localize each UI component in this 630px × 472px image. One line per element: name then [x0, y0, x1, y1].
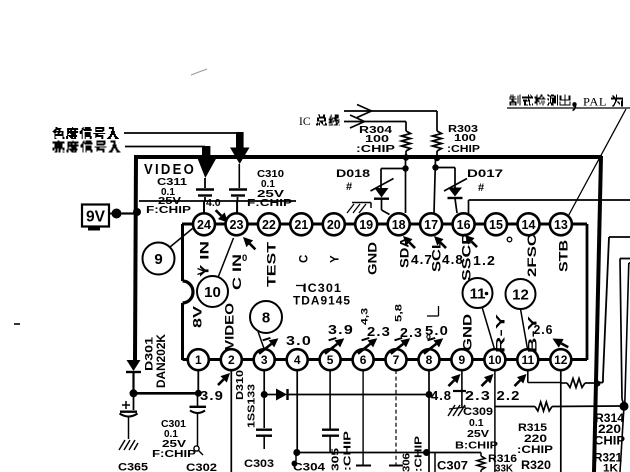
svg-text:4.8: 4.8 — [431, 388, 452, 403]
svg-text:10: 10 — [204, 284, 221, 301]
svg-text:8: 8 — [262, 309, 270, 326]
svg-text:DAN202K: DAN202K — [156, 333, 168, 388]
svg-text:C: C — [299, 255, 311, 263]
svg-text:15: 15 — [489, 218, 503, 232]
svg-text:7: 7 — [393, 353, 400, 367]
svg-text:F:CHIP: F:CHIP — [152, 449, 196, 460]
svg-text:2.2: 2.2 — [497, 388, 521, 403]
svg-text:STB: STB — [559, 240, 571, 272]
svg-text:C365: C365 — [118, 462, 148, 472]
svg-text:Y: Y — [330, 255, 342, 263]
svg-text:4.0: 4.0 — [206, 197, 221, 209]
svg-text:R-Y: R-Y — [496, 313, 508, 353]
svg-text:F:CHIP: F:CHIP — [146, 205, 191, 216]
svg-text:TDA9145: TDA9145 — [293, 296, 351, 308]
svg-text:16: 16 — [457, 218, 471, 232]
svg-text:3: 3 — [261, 353, 268, 367]
svg-text::CHIP: :CHIP — [517, 444, 553, 456]
svg-text:D310: D310 — [234, 370, 246, 400]
svg-text:D018: D018 — [336, 168, 370, 180]
svg-text::CHIP: :CHIP — [447, 143, 480, 155]
svg-text:C302: C302 — [186, 462, 217, 472]
svg-text:2: 2 — [228, 353, 235, 367]
svg-text:24: 24 — [197, 218, 211, 232]
svg-text:4: 4 — [294, 353, 301, 367]
svg-text:2.3: 2.3 — [367, 324, 391, 339]
svg-text:22: 22 — [262, 218, 276, 232]
svg-text:12: 12 — [554, 353, 568, 367]
svg-text:5,8: 5,8 — [394, 304, 404, 322]
svg-text:3.0: 3.0 — [286, 333, 312, 348]
svg-text:GND: GND — [463, 314, 475, 351]
svg-text:VIDEO: VIDEO — [225, 303, 237, 350]
svg-text::CHIP: :CHIP — [356, 143, 395, 155]
svg-text:2.3: 2.3 — [465, 388, 491, 403]
svg-text:3.9: 3.9 — [328, 322, 354, 337]
svg-text:2FSC: 2FSC — [525, 234, 539, 277]
svg-text:18: 18 — [392, 218, 406, 232]
svg-text:0: 0 — [242, 253, 247, 264]
svg-text:1.2: 1.2 — [473, 254, 496, 268]
svg-text:1SS133: 1SS133 — [246, 384, 258, 428]
svg-text:2.3: 2.3 — [400, 325, 423, 340]
svg-text:11: 11 — [470, 285, 486, 302]
svg-text:8: 8 — [426, 353, 433, 367]
svg-text:C304: C304 — [293, 462, 326, 472]
svg-text:8V: 8V — [193, 306, 205, 328]
svg-text:17: 17 — [424, 218, 438, 232]
svg-text:25V: 25V — [467, 428, 489, 440]
svg-text:IC301: IC301 — [303, 283, 342, 295]
svg-text:4.7: 4.7 — [411, 253, 433, 267]
svg-text:220: 220 — [598, 424, 621, 436]
svg-text:12: 12 — [512, 286, 529, 303]
svg-text:B:CHIP: B:CHIP — [455, 440, 498, 452]
svg-text:3.9: 3.9 — [200, 388, 224, 403]
svg-text:6: 6 — [360, 353, 367, 367]
svg-text:CHIP: CHIP — [594, 436, 625, 448]
svg-text:13: 13 — [554, 218, 568, 232]
svg-text:Y IN: Y IN — [200, 241, 212, 277]
svg-text:#: # — [478, 182, 484, 194]
svg-text:PAL: PAL — [583, 97, 607, 109]
svg-text:TEST: TEST — [267, 242, 279, 287]
svg-text:D017: D017 — [467, 168, 503, 180]
svg-text:C303: C303 — [244, 458, 274, 470]
svg-text::CHIP: :CHIP — [413, 436, 425, 472]
svg-text:9: 9 — [154, 251, 162, 268]
svg-text:GND: GND — [368, 242, 380, 275]
svg-text:1K: 1K — [603, 463, 618, 472]
svg-text:R320: R320 — [521, 460, 551, 472]
svg-text:C307: C307 — [437, 461, 468, 472]
svg-text:IC: IC — [299, 116, 311, 128]
svg-text:#: # — [346, 181, 352, 193]
svg-text:F:CHIP: F:CHIP — [247, 198, 292, 209]
svg-text:305: 305 — [330, 448, 342, 471]
svg-text:4.8: 4.8 — [442, 253, 464, 267]
svg-text:11: 11 — [521, 353, 534, 367]
svg-text:20: 20 — [327, 218, 341, 232]
svg-text:5: 5 — [327, 353, 334, 367]
svg-text:306: 306 — [401, 453, 413, 472]
svg-text:4,3: 4,3 — [360, 308, 370, 325]
svg-text:9V: 9V — [86, 209, 106, 226]
svg-text:1: 1 — [195, 353, 202, 367]
svg-text:2.6: 2.6 — [534, 323, 554, 337]
svg-text:14: 14 — [522, 218, 536, 232]
svg-text:10: 10 — [488, 353, 502, 367]
svg-text:33K: 33K — [495, 463, 513, 472]
svg-text::CHIP: :CHIP — [342, 431, 354, 471]
svg-text:D301: D301 — [144, 337, 156, 371]
svg-text:23: 23 — [230, 218, 244, 232]
svg-text:9: 9 — [459, 353, 466, 367]
svg-text:19: 19 — [359, 218, 373, 232]
svg-text:21: 21 — [294, 218, 308, 232]
